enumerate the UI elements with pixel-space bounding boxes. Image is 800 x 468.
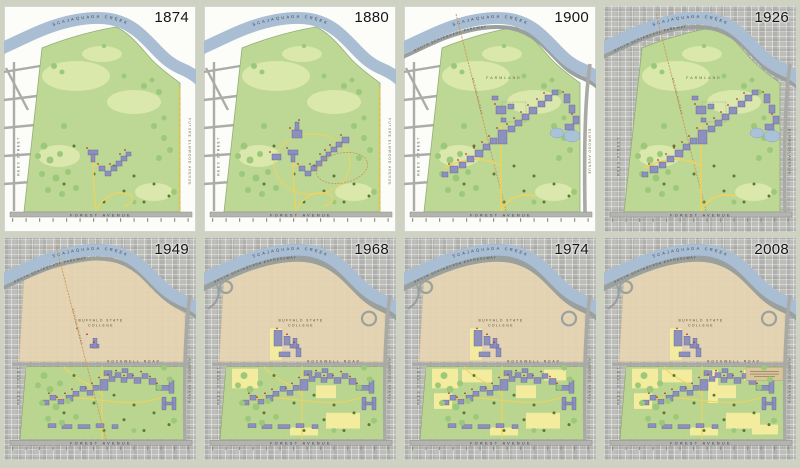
college-label-line2: COLLEGE: [488, 323, 514, 327]
college-label-line1: BUFFALO STATE: [78, 319, 123, 323]
farmland-area: FARMLAND: [486, 76, 522, 80]
right-street-label: ELMWOOD AVENUE: [387, 359, 391, 404]
year-label: 2008: [754, 241, 789, 258]
map-art: SCAJAQUADA CREEK: [204, 6, 396, 232]
map-panel: BUFFALO STATE COLLEGE ROCKWELL ROAD: [404, 238, 596, 460]
campus-photo-overlay: [419, 258, 585, 362]
left-street-label: REES STREET: [16, 366, 20, 405]
rockwell-road-label: ROCKWELL ROAD: [507, 359, 561, 363]
right-street-label: ELMWOOD AVENUE: [587, 359, 591, 404]
rockwell-road-label: ROCKWELL ROAD: [707, 359, 761, 363]
forest-avenue-label: FOREST AVENUE: [670, 442, 732, 446]
college-label-line1: BUFFALO STATE: [678, 319, 723, 323]
farmland-area: FARMLAND: [686, 76, 722, 80]
map-panel: SCAJAQUADA CREEK: [4, 6, 196, 232]
map-panel: BUFFALO STATE COLLEGE ROCKWELL ROAD: [4, 238, 196, 460]
left-street-label: REES STREET: [616, 366, 620, 405]
right-street-label: ELMWOOD AVENUE: [187, 359, 191, 404]
left-street-label: REES STREET: [17, 136, 21, 175]
map-panel: SOUTH SCAJAQUADA PARKWAY SCAJAQUADA CREE…: [604, 6, 796, 232]
college-label-line1: BUFFALO STATE: [278, 319, 323, 323]
year-label: 1926: [754, 9, 789, 26]
right-street-label: FUTURE ELMWOOD AVENUE: [388, 118, 392, 185]
map-art: SOUTH SCAJAQUADA PARKWAY SCAJAQUADA CREE…: [404, 6, 596, 232]
rockwell-road-label: ROCKWELL ROAD: [107, 359, 161, 363]
forest-avenue-label: FOREST AVENUE: [270, 442, 332, 446]
map-art: BUFFALO STATE COLLEGE ROCKWELL ROAD: [604, 238, 796, 460]
left-street-label: REES STREET: [217, 136, 221, 175]
forest-avenue-label: FOREST AVENUE: [70, 442, 132, 446]
forest-avenue-label: FOREST AVENUE: [470, 442, 532, 446]
year-label: 1874: [154, 9, 189, 26]
forest-avenue-road: FOREST AVENUE: [410, 440, 592, 448]
historical-map-series: SCAJAQUADA CREEK: [0, 0, 800, 468]
map-panel: BUFFALO STATE COLLEGE ROCKWELL ROAD: [204, 238, 396, 460]
map-art: BUFFALO STATE COLLEGE ROCKWELL ROAD: [4, 238, 196, 460]
right-street-label: ELMWOOD AVENUE: [787, 359, 791, 404]
right-street-label: ELMWOOD AVENUE: [788, 129, 792, 175]
year-label: 1974: [554, 241, 589, 258]
forest-avenue-road: FOREST AVENUE: [610, 440, 792, 448]
map-art: SOUTH SCAJAQUADA PARKWAY SCAJAQUADA CREE…: [604, 6, 796, 232]
map-panel: BUFFALO STATE COLLEGE ROCKWELL ROAD: [604, 238, 796, 460]
forest-avenue-road: FOREST AVENUE: [10, 440, 192, 448]
map-art: BUFFALO STATE COLLEGE ROCKWELL ROAD: [204, 238, 396, 460]
left-street-label: REES STREET: [216, 366, 220, 405]
forest-avenue-road: FOREST AVENUE: [210, 440, 392, 448]
forest-avenue-label: FOREST AVENUE: [670, 213, 732, 217]
left-street-label: REES STREET: [416, 366, 420, 405]
farmland-label: FARMLAND: [486, 76, 522, 80]
year-label: 1949: [154, 241, 189, 258]
year-label: 1900: [554, 9, 589, 26]
forest-avenue-label: FOREST AVENUE: [70, 213, 132, 217]
college-label-line2: COLLEGE: [288, 323, 314, 327]
campus-photo-overlay: [219, 258, 385, 362]
left-street-label: REES STREET: [417, 136, 421, 175]
rockwell-road-label: ROCKWELL ROAD: [307, 359, 361, 363]
panel-grid: SCAJAQUADA CREEK: [0, 0, 800, 468]
forest-avenue-label: FOREST AVENUE: [270, 213, 332, 217]
college-label-line2: COLLEGE: [688, 323, 714, 327]
map-panel: SOUTH SCAJAQUADA PARKWAY SCAJAQUADA CREE…: [404, 6, 596, 232]
forest-avenue-label: FOREST AVENUE: [470, 213, 532, 217]
map-art: SCAJAQUADA CREEK: [4, 6, 196, 232]
farmland-label: FARMLAND: [686, 76, 722, 80]
forest-avenue-road: FOREST AVENUE: [410, 212, 592, 220]
campus-photo-overlay: [619, 258, 785, 362]
left-street-label: REES STREET: [617, 136, 621, 175]
right-street-label: FUTURE ELMWOOD AVENUE: [188, 118, 192, 185]
map-panel: SCAJAQUADA CREEK: [204, 6, 396, 232]
year-label: 1968: [354, 241, 389, 258]
college-label-line2: COLLEGE: [88, 323, 114, 327]
right-street-label: ELMWOOD AVENUE: [588, 129, 592, 175]
forest-avenue-road: FOREST AVENUE: [10, 212, 192, 220]
map-art: BUFFALO STATE COLLEGE ROCKWELL ROAD: [404, 238, 596, 460]
forest-avenue-road: FOREST AVENUE: [210, 212, 392, 220]
year-label: 1880: [354, 9, 389, 26]
college-label-line1: BUFFALO STATE: [478, 319, 523, 323]
forest-avenue-road: FOREST AVENUE: [610, 212, 792, 220]
campus-photo-overlay: [19, 258, 185, 362]
